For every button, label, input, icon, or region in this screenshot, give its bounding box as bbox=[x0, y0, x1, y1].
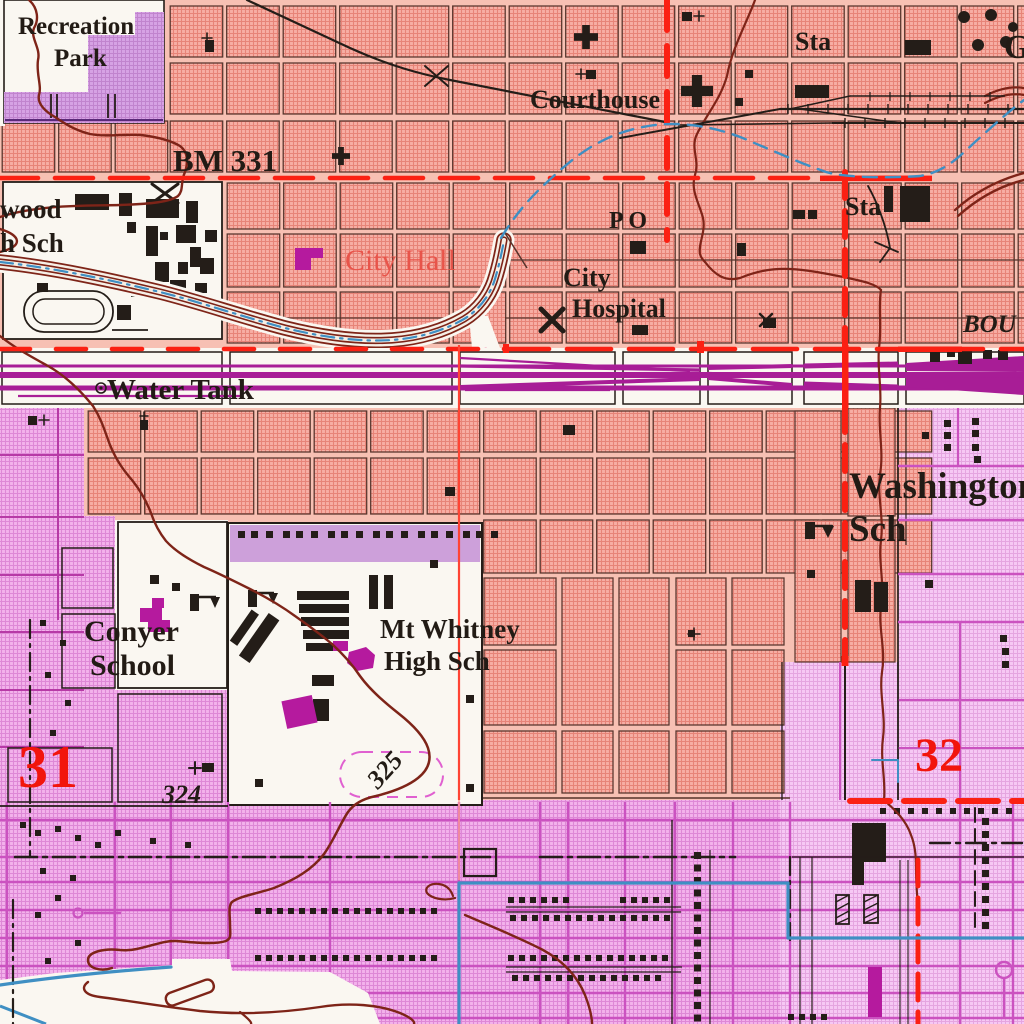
svg-text:City: City bbox=[563, 263, 611, 292]
svg-text:Sch: Sch bbox=[849, 509, 907, 550]
svg-text:324: 324 bbox=[161, 780, 201, 809]
svg-text:Washington: Washington bbox=[849, 466, 1024, 507]
svg-text:Recreation: Recreation bbox=[18, 13, 134, 40]
svg-text:wood: wood bbox=[0, 194, 62, 224]
svg-text:Conyer: Conyer bbox=[84, 615, 179, 648]
svg-text:31: 31 bbox=[18, 734, 78, 800]
svg-text:School: School bbox=[90, 649, 175, 682]
svg-text:City Hall: City Hall bbox=[345, 244, 456, 277]
svg-text:32: 32 bbox=[915, 729, 963, 782]
svg-text:G: G bbox=[1004, 29, 1024, 66]
svg-text:BM 331: BM 331 bbox=[173, 143, 277, 178]
svg-text:Water Tank: Water Tank bbox=[107, 374, 255, 406]
svg-text:BOU: BOU bbox=[962, 311, 1018, 338]
svg-text:High Sch: High Sch bbox=[384, 646, 490, 676]
svg-text:h Sch: h Sch bbox=[0, 228, 64, 258]
svg-text:Courthouse: Courthouse bbox=[530, 85, 660, 114]
svg-text:Park: Park bbox=[54, 45, 107, 72]
svg-text:Sta: Sta bbox=[795, 27, 831, 56]
svg-text:P O: P O bbox=[609, 208, 647, 234]
svg-text:Hospital: Hospital bbox=[572, 294, 666, 323]
svg-text:Mt Whitney: Mt Whitney bbox=[380, 614, 520, 644]
svg-text:Sta: Sta bbox=[845, 192, 881, 221]
